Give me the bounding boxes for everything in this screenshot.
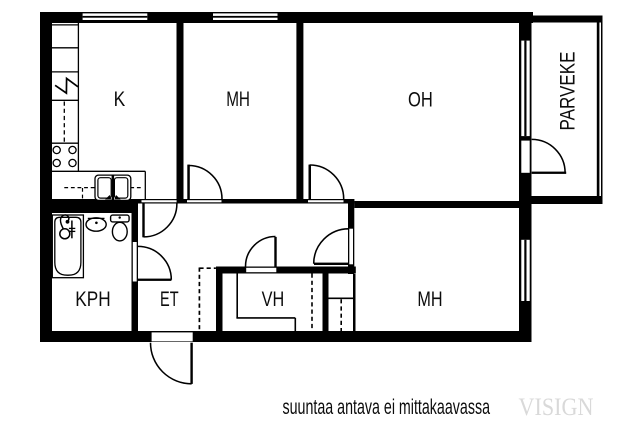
svg-text:K: K <box>114 88 126 111</box>
svg-text:MH: MH <box>226 88 250 111</box>
svg-text:ET: ET <box>160 288 179 311</box>
svg-text:suuntaa antava ei mittakaavass: suuntaa antava ei mittakaavassa <box>283 396 491 419</box>
svg-text:MH: MH <box>417 288 442 311</box>
svg-text:VH: VH <box>262 288 285 311</box>
svg-text:KPH: KPH <box>75 288 110 311</box>
svg-text:PARVEKE: PARVEKE <box>557 52 580 131</box>
svg-text:VISIGN: VISIGN <box>519 394 594 421</box>
svg-text:OH: OH <box>408 88 433 111</box>
